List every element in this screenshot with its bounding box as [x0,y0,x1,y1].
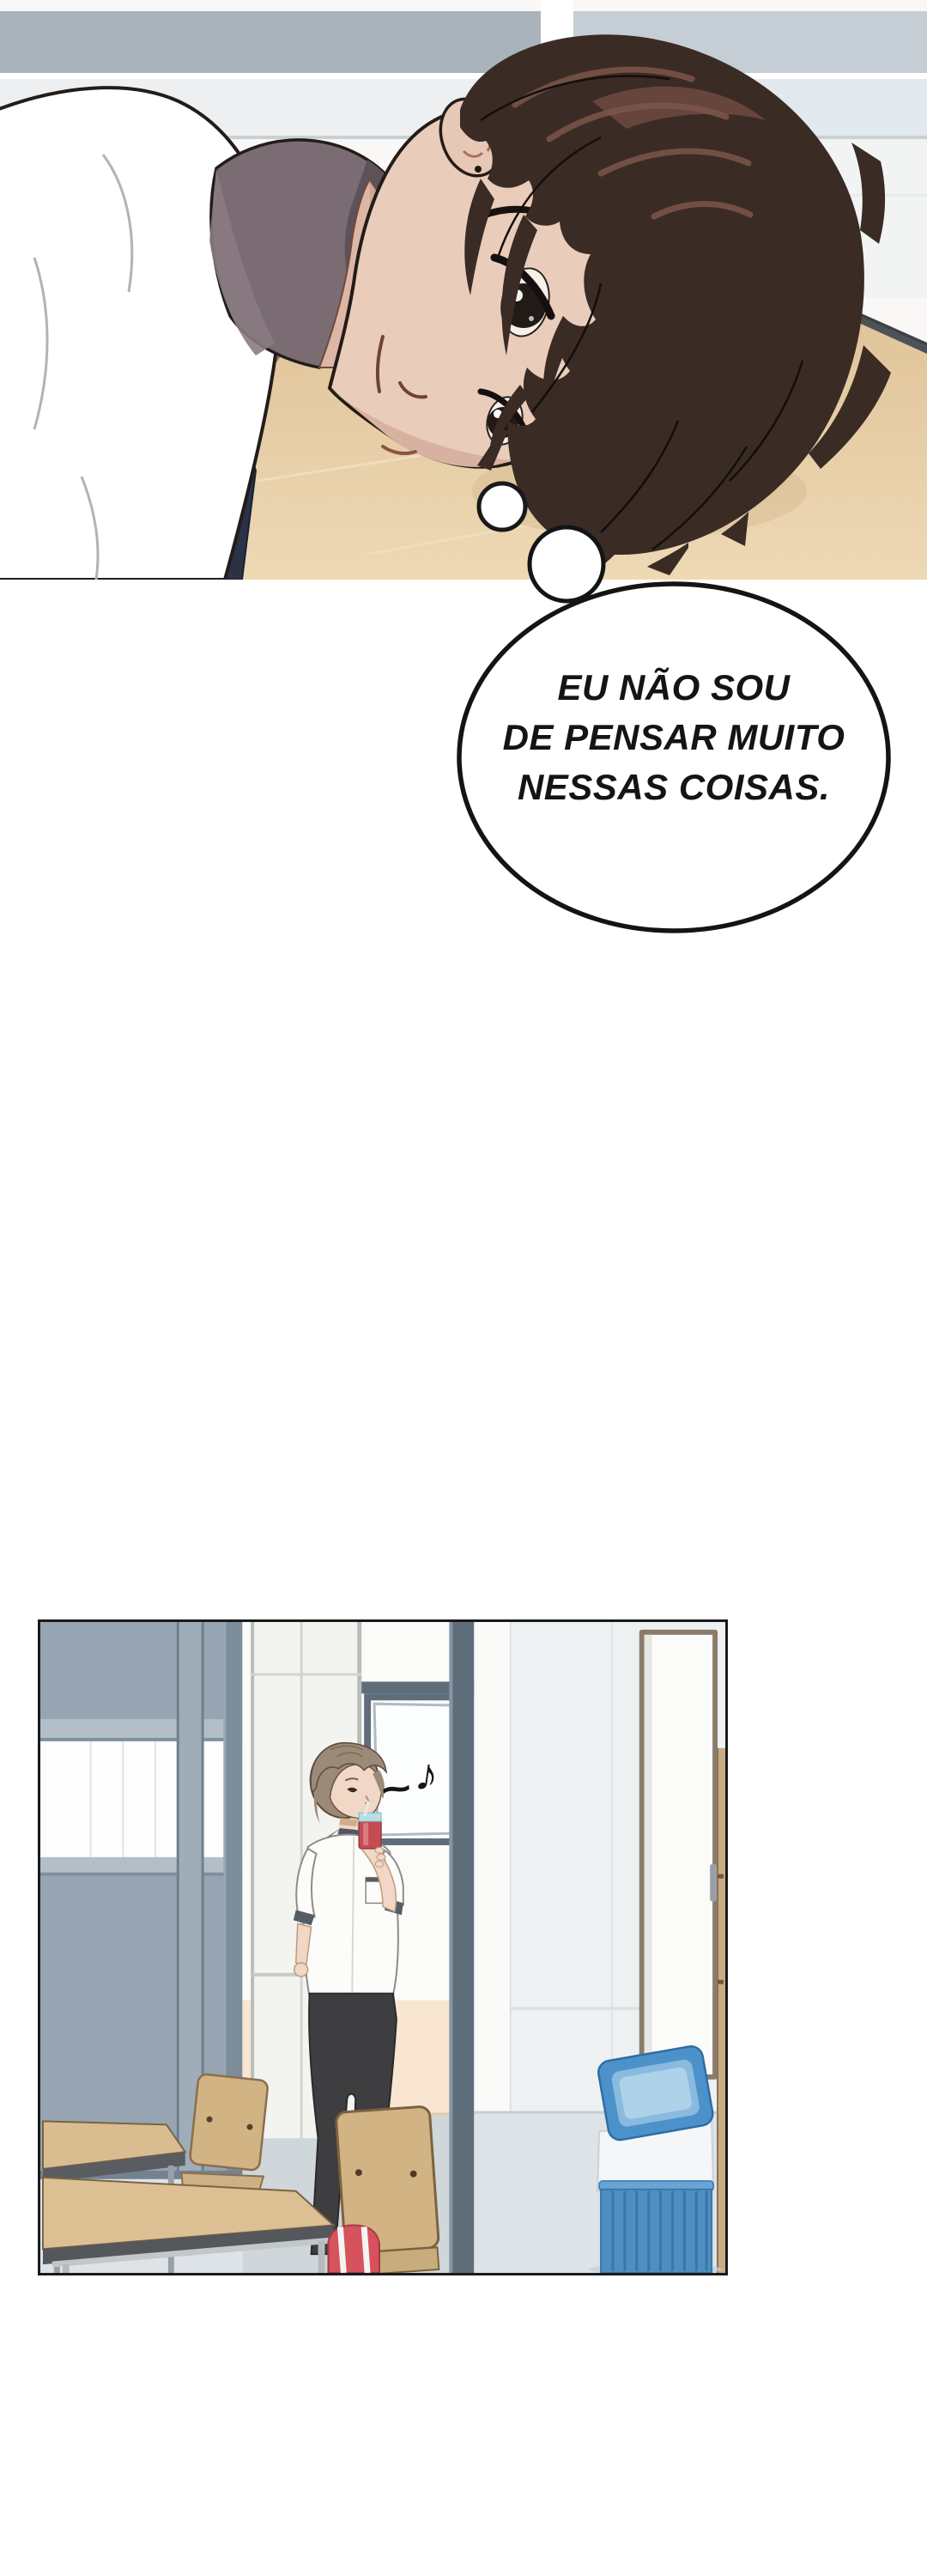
thought-bubble-text: EU NÃO SOU DE PENSAR MUITO NESSAS COISAS… [459,663,888,812]
bin-base [601,2190,712,2273]
door-jamb [449,1622,474,2273]
cabinet-edge [717,1748,725,2273]
webtoon-page: EU NÃO SOU DE PENSAR MUITO NESSAS COISAS… [0,0,927,2576]
bubble-line: EU NÃO SOU [459,663,888,713]
bubble-line: DE PENSAR MUITO [459,713,888,762]
panel2-art [40,1622,725,2273]
mirror [639,1630,718,2080]
bubble-bump [530,527,603,601]
panel-top-boy-on-desk [0,0,927,580]
panel1-art [0,0,927,580]
ear-piercing [475,166,482,173]
trash-bin [589,2044,722,2273]
bin-lid [597,2044,714,2142]
partition-window [40,1741,242,1859]
bubble-line: NESSAS COISAS. [459,762,888,812]
sfx-tilde: ~ [379,1767,414,1810]
mirror-latch [710,1864,717,1902]
school-bag [328,2225,379,2273]
panel-bottom-classroom [38,1619,728,2275]
